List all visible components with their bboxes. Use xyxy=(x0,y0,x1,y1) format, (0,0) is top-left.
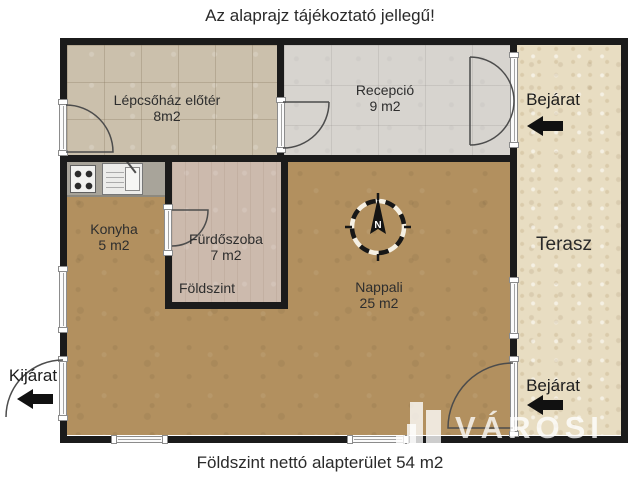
door-arc-stairwell xyxy=(66,105,113,152)
watermark-brand: VÁROSI xyxy=(455,410,604,446)
label-living-name: Nappali xyxy=(355,279,402,295)
label-kitchen-area: 5 m2 xyxy=(90,237,137,253)
label-entrance-bottom: Bejárat xyxy=(526,376,580,396)
label-kitchen: Konyha 5 m2 xyxy=(90,221,137,253)
watermark-building-icon xyxy=(396,401,444,447)
compass: N xyxy=(345,193,411,261)
label-entrance-top: Bejárat xyxy=(526,90,580,110)
door-arc-stairwell-reception xyxy=(283,102,329,148)
label-stairwell-area: 8m2 xyxy=(114,108,221,124)
label-reception-name: Recepció xyxy=(356,82,414,98)
exit-arrow xyxy=(17,389,53,409)
label-living-area: 25 m2 xyxy=(355,295,402,311)
label-terrace: Terasz xyxy=(536,234,592,256)
label-exit: Kijárat xyxy=(9,366,57,386)
label-kitchen-name: Konyha xyxy=(90,221,137,237)
label-bathroom-level: Földszint xyxy=(179,280,235,296)
floor-plan: Az alaprajz tájékoztató jellegű! Földszi… xyxy=(0,0,640,480)
label-reception: Recepció 9 m2 xyxy=(356,82,414,114)
label-stairwell-name: Lépcsőház előtér xyxy=(114,92,221,108)
entrance-arrow-top xyxy=(527,116,563,136)
label-bathroom-name: Fürdőszoba xyxy=(189,231,263,247)
label-living: Nappali 25 m2 xyxy=(355,279,402,311)
compass-north-label: N xyxy=(374,220,381,231)
label-bathroom-area: 7 m2 xyxy=(189,247,263,263)
door-arc-reception-double xyxy=(470,57,514,145)
label-stairwell: Lépcsőház előtér 8m2 xyxy=(114,92,221,124)
label-reception-area: 9 m2 xyxy=(356,98,414,114)
label-bathroom: Fürdőszoba 7 m2 xyxy=(189,231,263,263)
direction-arrows xyxy=(17,116,563,415)
